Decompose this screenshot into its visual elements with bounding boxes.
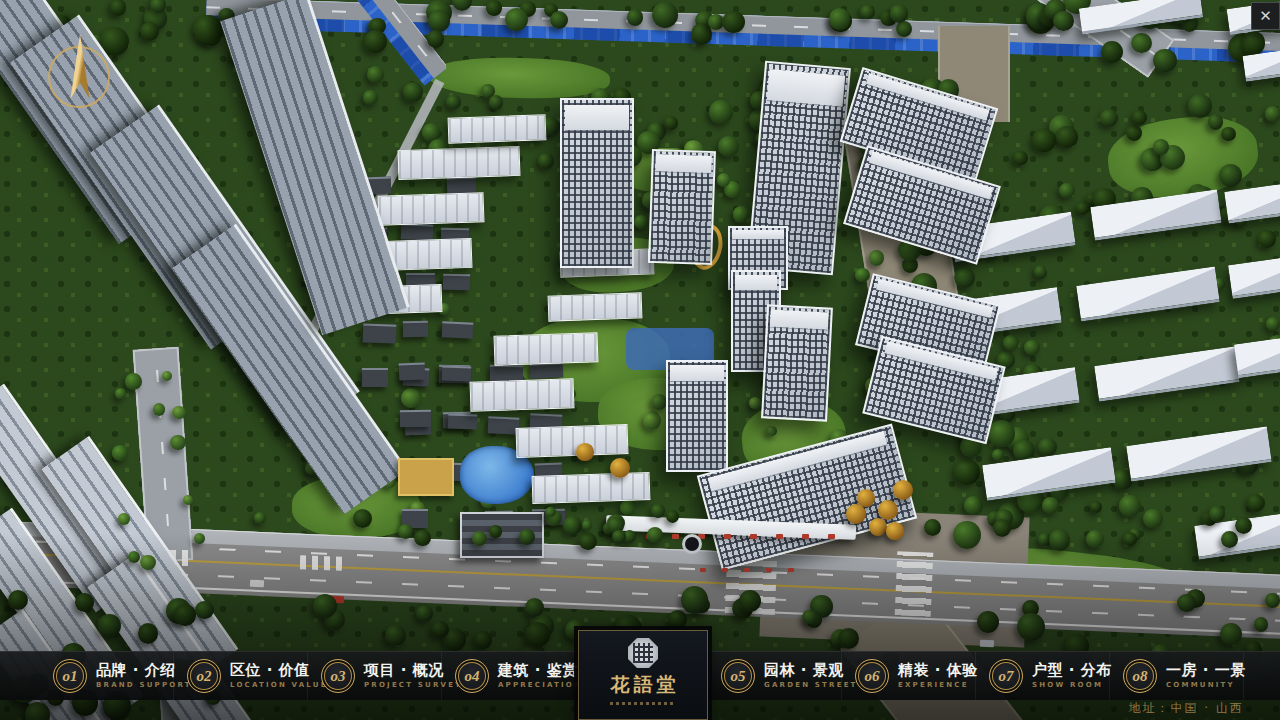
tree <box>153 403 165 415</box>
nav-item-floorplan-distribution[interactable]: o7 户型 · 分布 SHOW ROOM <box>976 652 1110 700</box>
tree <box>545 507 556 518</box>
tree <box>138 623 159 644</box>
tree <box>1032 129 1055 152</box>
tree <box>954 459 980 485</box>
nav-labels: 一房 · 一景 COMMUNITY <box>1166 663 1246 689</box>
tree <box>681 586 709 614</box>
tree <box>1266 317 1280 331</box>
tree <box>964 496 983 515</box>
nav-number: o5 <box>731 668 746 685</box>
nav-item-brand-intro[interactable]: o1 品牌 · 介绍 BRAND SUPPORT <box>40 652 174 700</box>
courtyard-house <box>400 223 433 240</box>
seal-emblem-icon <box>628 638 658 668</box>
close-icon: ✕ <box>1259 7 1272 25</box>
nav-label-zh: 精装 · 体验 <box>898 663 978 679</box>
nav-label-zh: 一房 · 一景 <box>1166 663 1246 679</box>
entrance-column <box>776 534 783 539</box>
address-text: 地址：中国 · 山西 <box>1129 700 1244 717</box>
tree <box>749 397 761 409</box>
tree <box>401 388 421 408</box>
warehouse-slab <box>1234 336 1280 379</box>
nav-item-project-overview[interactable]: o3 项目 · 概况 PROJECT SURVEY <box>308 652 442 700</box>
nav-number-badge: o7 <box>989 659 1023 693</box>
nav-label-en: EXPERIENCE <box>898 682 978 689</box>
nav-labels: 户型 · 分布 SHOW ROOM <box>1032 663 1112 689</box>
tree <box>634 215 648 229</box>
warehouse-slab <box>1228 255 1280 299</box>
nav-number: o6 <box>865 668 880 685</box>
entrance-fountain <box>682 534 702 554</box>
red-marker <box>722 568 728 572</box>
tree <box>993 519 1011 537</box>
tree <box>98 614 121 637</box>
warehouse-slab <box>1094 346 1240 401</box>
tree <box>75 593 93 611</box>
tree <box>890 4 909 23</box>
tree <box>666 510 679 523</box>
tree <box>1123 532 1137 546</box>
tree <box>416 605 433 622</box>
tree <box>612 530 626 544</box>
orange-tree <box>886 522 903 539</box>
tree <box>1119 495 1141 517</box>
tree <box>519 529 535 545</box>
tree <box>367 66 384 83</box>
tree <box>1254 617 1268 631</box>
nav-number: o7 <box>999 668 1014 685</box>
nav-item-room-view[interactable]: o8 一房 · 一景 COMMUNITY <box>1110 652 1244 700</box>
tree <box>1220 623 1242 645</box>
tree <box>643 411 661 429</box>
tree <box>194 533 205 544</box>
tree <box>128 551 140 563</box>
kindergarten-building <box>398 458 454 496</box>
entrance-column <box>750 534 757 539</box>
tree <box>505 8 528 31</box>
tree <box>115 388 125 398</box>
nav-label-en: COMMUNITY <box>1166 682 1246 689</box>
red-marker <box>744 568 750 572</box>
tree <box>486 0 501 15</box>
tree <box>254 512 266 524</box>
tree <box>474 631 492 649</box>
residential-tower <box>560 98 634 268</box>
tree <box>1143 509 1163 529</box>
tree <box>647 527 663 543</box>
tree <box>1042 497 1059 514</box>
tree <box>1209 506 1225 522</box>
nav-number-badge: o6 <box>855 659 889 693</box>
tree <box>709 100 732 123</box>
tree <box>1059 183 1075 199</box>
tree <box>992 449 1004 461</box>
midrise-building <box>378 192 485 226</box>
tree <box>195 601 214 620</box>
courtyard-house <box>400 410 431 427</box>
tree <box>652 2 677 27</box>
tree <box>489 95 503 109</box>
nav-number: o3 <box>331 668 346 685</box>
tree <box>1086 530 1104 548</box>
nav-labels: 精装 · 体验 EXPERIENCE <box>898 663 978 689</box>
nav-label-zh: 建筑 · 鉴赏 <box>498 663 582 679</box>
tree <box>525 622 550 647</box>
nav-labels: 建筑 · 鉴赏 APPRECIATION <box>498 663 582 689</box>
nav-number-badge: o4 <box>455 659 489 693</box>
tree <box>1242 31 1265 54</box>
midrise-building <box>532 472 651 504</box>
tree <box>174 604 195 625</box>
tree <box>924 519 941 536</box>
nav-item-interior-experience[interactable]: o6 精装 · 体验 EXPERIENCE <box>842 652 976 700</box>
tree <box>718 136 739 157</box>
midrise-building <box>470 378 575 412</box>
tree <box>140 22 159 41</box>
nav-number-badge: o5 <box>721 659 755 693</box>
tree <box>988 420 1014 446</box>
tree <box>1090 501 1102 513</box>
tree <box>1258 230 1276 248</box>
property-sales-app: ✕ o1 品牌 · 介绍 BRAND SUPPORT o2 区位 · 价值 LO… <box>0 0 1280 720</box>
tree <box>1024 340 1040 356</box>
warehouse-slab <box>1076 266 1220 321</box>
tree <box>1153 49 1176 72</box>
nav-number-badge: o2 <box>187 659 221 693</box>
tree <box>118 513 130 525</box>
midrise-building <box>548 292 643 321</box>
tree <box>1235 517 1252 534</box>
crosswalk <box>300 555 342 570</box>
tree <box>398 524 413 539</box>
tree <box>125 373 142 390</box>
aerial-map-viewport[interactable] <box>0 0 1280 720</box>
project-logo-panel[interactable]: 花語堂 <box>578 630 708 720</box>
tree <box>1049 529 1070 550</box>
car <box>250 580 264 588</box>
tree <box>855 268 870 283</box>
nav-number-badge: o1 <box>53 659 87 693</box>
tree <box>489 525 502 538</box>
tree <box>1219 164 1242 187</box>
tree <box>620 500 635 515</box>
car <box>980 640 994 648</box>
tree <box>1132 110 1147 125</box>
tree <box>183 495 193 505</box>
tree <box>869 250 884 265</box>
tree <box>829 8 850 29</box>
tree <box>717 173 730 186</box>
tree <box>1017 613 1045 641</box>
nav-number: o2 <box>197 668 212 685</box>
tree <box>1188 94 1212 118</box>
project-name: 花語堂 <box>607 672 680 698</box>
nav-label-en: APPRECIATION <box>498 682 582 689</box>
tree <box>1076 202 1089 215</box>
nav-number: o1 <box>63 668 78 685</box>
courtyard-house <box>442 322 474 340</box>
midrise-building <box>448 114 547 143</box>
nav-number-badge: o3 <box>321 659 355 693</box>
tree <box>112 445 128 461</box>
tree <box>25 702 50 720</box>
courtyard-house <box>448 414 478 431</box>
tree <box>1265 593 1279 607</box>
red-marker <box>766 568 772 572</box>
tree <box>1221 531 1238 548</box>
tree <box>403 82 423 102</box>
courtyard-house <box>442 365 472 381</box>
tree <box>582 520 592 530</box>
tree <box>1208 114 1223 129</box>
courtyard-house <box>363 323 396 343</box>
tree <box>953 521 981 549</box>
tree <box>733 206 749 222</box>
crosswalk <box>895 551 934 616</box>
close-button[interactable]: ✕ <box>1251 2 1280 30</box>
entrance-column <box>672 534 679 539</box>
orange-tree <box>610 458 630 478</box>
tree <box>538 153 553 168</box>
tree <box>193 15 223 45</box>
tree <box>1013 151 1027 165</box>
tree <box>363 90 377 104</box>
tree <box>1003 335 1019 351</box>
midrise-building <box>398 146 521 180</box>
nav-item-location-value[interactable]: o2 区位 · 价值 LOCATION VALUE <box>174 652 308 700</box>
tree <box>838 628 859 649</box>
courtyard-house <box>362 367 388 386</box>
nav-number-badge: o8 <box>1123 659 1157 693</box>
tree <box>172 406 186 420</box>
tree <box>1100 109 1118 127</box>
tree <box>766 426 776 436</box>
nav-number: o8 <box>1133 668 1148 685</box>
logo-tagline-decoration <box>610 702 676 705</box>
nav-item-architecture[interactable]: o4 建筑 · 鉴赏 APPRECIATION <box>442 652 576 700</box>
red-marker <box>700 568 706 572</box>
tree <box>446 95 460 109</box>
residential-tower <box>666 360 728 472</box>
tree <box>651 504 664 517</box>
tree <box>364 30 387 53</box>
tree <box>1131 33 1151 53</box>
tree <box>414 530 430 546</box>
entrance-column <box>828 534 835 539</box>
midrise-building <box>516 424 629 458</box>
courtyard-house <box>403 321 428 338</box>
tree <box>170 435 185 450</box>
warehouse-slab <box>1224 180 1280 223</box>
tree <box>802 610 816 624</box>
residential-tower <box>761 304 833 421</box>
tree <box>110 0 127 16</box>
entrance-column <box>724 534 731 539</box>
courtyard-house <box>442 273 470 290</box>
tree <box>1056 126 1077 147</box>
tree <box>1265 106 1280 122</box>
tree <box>954 267 975 288</box>
orange-tree <box>576 443 593 460</box>
tree <box>431 621 449 639</box>
entrance-column <box>802 534 809 539</box>
tree <box>664 116 678 130</box>
tree <box>1247 494 1265 512</box>
tree <box>140 555 155 570</box>
tree <box>1034 265 1048 279</box>
residential-tower <box>648 149 716 265</box>
midrise-building <box>494 332 599 366</box>
compass-icon <box>47 34 113 110</box>
red-marker <box>788 568 794 572</box>
tree <box>1221 127 1236 142</box>
nav-label-zh: 户型 · 分布 <box>1032 663 1112 679</box>
tree <box>860 5 875 20</box>
tree <box>1053 11 1074 32</box>
tree <box>162 371 172 381</box>
tree <box>1038 438 1056 456</box>
tree <box>563 516 582 535</box>
nav-label-en: SHOW ROOM <box>1032 682 1112 689</box>
tree <box>427 30 445 48</box>
orange-tree <box>846 504 866 524</box>
tree <box>1177 594 1196 613</box>
tree <box>385 625 406 646</box>
tree <box>668 610 687 629</box>
courtyard-house <box>399 363 426 382</box>
tree <box>722 11 745 34</box>
nav-number: o4 <box>465 668 480 685</box>
nav-item-garden-landscape[interactable]: o5 园林 · 景观 GARDEN STREET <box>708 652 842 700</box>
